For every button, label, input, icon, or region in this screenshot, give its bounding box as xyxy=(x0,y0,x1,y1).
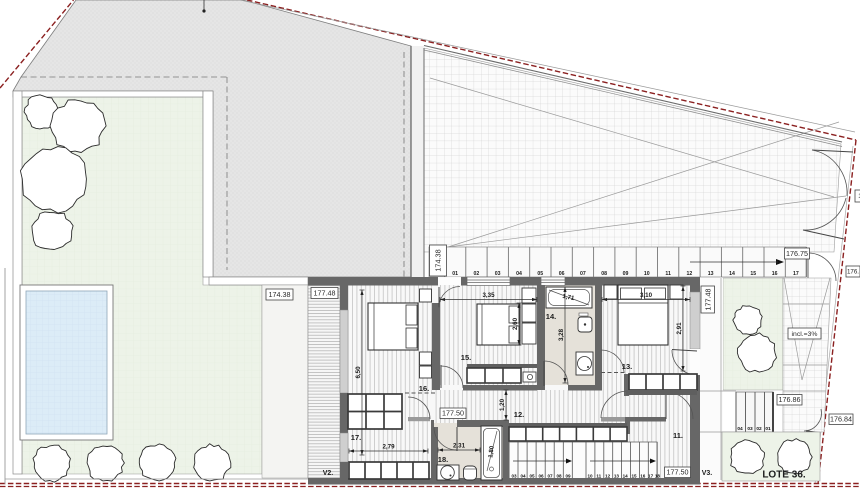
svg-text:07: 07 xyxy=(580,271,586,277)
svg-text:177.50: 177.50 xyxy=(442,409,464,418)
svg-text:11.: 11. xyxy=(673,431,683,440)
svg-text:01: 01 xyxy=(765,426,771,432)
svg-text:13.: 13. xyxy=(622,362,632,371)
svg-text:15.: 15. xyxy=(461,353,471,362)
svg-text:17: 17 xyxy=(793,271,799,277)
svg-text:03: 03 xyxy=(511,474,517,479)
svg-text:05: 05 xyxy=(529,474,535,479)
svg-text:11: 11 xyxy=(596,474,601,479)
svg-text:2,79: 2,79 xyxy=(382,444,395,451)
svg-text:176.75: 176.75 xyxy=(786,249,808,258)
svg-text:08: 08 xyxy=(556,474,562,479)
svg-text:11: 11 xyxy=(665,271,671,277)
svg-text:16: 16 xyxy=(772,271,778,277)
svg-text:3,28: 3,28 xyxy=(558,328,565,341)
svg-text:176.: 176. xyxy=(847,269,859,276)
svg-text:02: 02 xyxy=(474,271,480,277)
svg-text:6,50: 6,50 xyxy=(355,366,362,379)
svg-text:15: 15 xyxy=(750,271,756,277)
svg-text:177.48: 177.48 xyxy=(314,288,336,297)
svg-text:3,10: 3,10 xyxy=(640,292,653,299)
svg-text:2,60: 2,60 xyxy=(512,317,519,330)
svg-text:18.: 18. xyxy=(438,455,448,464)
svg-text:incl.=3%: incl.=3% xyxy=(792,331,818,338)
svg-text:176.86: 176.86 xyxy=(779,395,801,404)
svg-text:174.38: 174.38 xyxy=(434,249,443,271)
svg-text:V3.: V3. xyxy=(702,470,713,477)
svg-text:02: 02 xyxy=(756,426,762,432)
svg-text:17: 17 xyxy=(648,474,654,479)
svg-text:14: 14 xyxy=(623,474,629,479)
svg-text:10: 10 xyxy=(644,271,650,277)
svg-text:177.50: 177.50 xyxy=(667,468,689,477)
svg-text:17.: 17. xyxy=(351,433,361,442)
svg-text:08: 08 xyxy=(601,271,607,277)
svg-text:04: 04 xyxy=(737,426,743,432)
svg-text:03: 03 xyxy=(495,271,501,277)
svg-text:2,91: 2,91 xyxy=(676,322,683,335)
svg-text:14.: 14. xyxy=(546,312,556,321)
svg-text:LOTE 36.: LOTE 36. xyxy=(762,470,806,481)
svg-text:177.48: 177.48 xyxy=(703,289,712,311)
svg-text:05: 05 xyxy=(537,271,543,277)
svg-text:16.: 16. xyxy=(419,384,429,393)
svg-text:14: 14 xyxy=(729,271,735,277)
svg-text:2,31: 2,31 xyxy=(453,443,466,450)
svg-text:04: 04 xyxy=(520,474,526,479)
svg-text:13: 13 xyxy=(614,474,620,479)
svg-text:01: 01 xyxy=(452,271,458,277)
svg-text:04: 04 xyxy=(516,271,522,277)
svg-text:06: 06 xyxy=(559,271,565,277)
svg-text:10: 10 xyxy=(587,474,593,479)
svg-text:V2.: V2. xyxy=(323,470,334,477)
svg-text:12: 12 xyxy=(687,271,693,277)
svg-text:06: 06 xyxy=(538,474,544,479)
svg-text:03: 03 xyxy=(747,426,753,432)
svg-text:18: 18 xyxy=(655,474,661,479)
svg-text:12: 12 xyxy=(605,474,611,479)
svg-text:09: 09 xyxy=(565,474,571,479)
svg-text:1,20: 1,20 xyxy=(499,398,506,411)
svg-text:07: 07 xyxy=(547,474,553,479)
svg-text:3,35: 3,35 xyxy=(482,292,495,299)
svg-text:12.: 12. xyxy=(514,410,524,419)
svg-text:176.84: 176.84 xyxy=(830,415,852,424)
svg-text:13: 13 xyxy=(708,271,714,277)
svg-text:09: 09 xyxy=(623,271,629,277)
svg-text:15: 15 xyxy=(631,474,637,479)
svg-text:16: 16 xyxy=(640,474,646,479)
svg-text:174.38: 174.38 xyxy=(269,290,291,299)
